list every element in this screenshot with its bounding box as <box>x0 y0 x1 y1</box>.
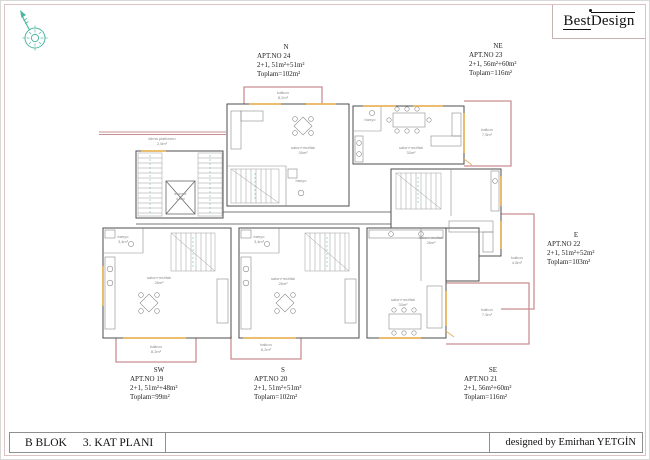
apt-no: APT.NO 19 <box>130 375 188 384</box>
direction-label: N <box>257 43 315 52</box>
apartment-label-se: SE APT.NO 21 2+1, 56m²+60m² Toplam=116m² <box>464 366 522 402</box>
room-label: 7,5m² <box>482 132 493 137</box>
apt-no: APT.NO 20 <box>254 375 312 384</box>
floor-plan-sheet: BestDesign <box>0 0 650 460</box>
room-label: 26m² <box>298 150 308 155</box>
room-label: 7,5m² <box>482 312 493 317</box>
apt-layout: 2+1, 56m²+60m² <box>469 60 527 69</box>
logo-cell: BestDesign <box>552 5 645 39</box>
room-label: 2,5m² <box>157 141 168 146</box>
room-label: 26m² <box>278 281 288 286</box>
room-label: banyo <box>365 117 377 122</box>
direction-label: SE <box>464 366 522 375</box>
apt-total: Toplam=116m² <box>464 393 522 402</box>
apt-total: Toplam=102m² <box>257 70 315 79</box>
plan-name: 3. KAT PLANI <box>83 437 153 449</box>
apt-layout: 2+1, 56m²+60m² <box>464 384 522 393</box>
title-block-left-cell: B BLOK 3. KAT PLANI <box>10 433 166 452</box>
direction-label: SW <box>130 366 188 375</box>
apartment-label-e: E APT.NO 22 2+1, 51m²+52m² Toplam=103m² <box>547 231 605 267</box>
apartment-label-sw: SW APT.NO 19 2+1, 51m²+48m² Toplam=99m² <box>130 366 188 402</box>
room-label: 26m² <box>154 280 164 285</box>
apartment-label-n: N APT.NO 24 2+1, 51m²+51m² Toplam=102m² <box>257 43 315 79</box>
logo-design-text: Design <box>591 12 635 29</box>
room-label: 33m² <box>398 302 408 307</box>
room-label: 3,4m² <box>118 239 129 244</box>
apt-layout: 2+1, 51m²+51m² <box>254 384 312 393</box>
apt-total: Toplam=102m² <box>254 393 312 402</box>
direction-label: S <box>254 366 312 375</box>
apt-total: Toplam=99m² <box>130 393 188 402</box>
apt-total: Toplam=116m² <box>469 69 527 78</box>
direction-label: NE <box>469 42 527 51</box>
room-label: 8,2m² <box>278 95 289 100</box>
room-label: 26m² <box>426 240 436 245</box>
direction-label: E <box>547 231 605 240</box>
logo-best-text: Best <box>563 13 590 30</box>
floor-plan-drawing: klima platformu 2,5m² balkon 8,2m² balko… <box>91 81 551 371</box>
apt-no: APT.NO 21 <box>464 375 522 384</box>
room-label: 4,0m² <box>176 197 186 201</box>
room-label: 3,4m² <box>254 239 265 244</box>
room-label: 33m² <box>406 150 416 155</box>
room-label: asansör <box>174 192 187 196</box>
title-block: B BLOK 3. KAT PLANI designed by Emirhan … <box>9 432 643 453</box>
room-label: 4,8m² <box>512 260 523 265</box>
apt-layout: 2+1, 51m²+51m² <box>257 61 315 70</box>
room-label: 8,2m² <box>151 349 162 354</box>
room-label: banyo <box>296 178 308 183</box>
apartment-label-ne: NE APT.NO 23 2+1, 56m²+60m² Toplam=116m² <box>469 42 527 78</box>
apt-no: APT.NO 23 <box>469 51 527 60</box>
apt-layout: 2+1, 51m²+52m² <box>547 249 605 258</box>
block-name: B BLOK <box>25 437 67 449</box>
bestdesign-logo: BestDesign <box>563 13 634 30</box>
room-label: 8,2m² <box>261 347 272 352</box>
apt-layout: 2+1, 51m²+48m² <box>130 384 188 393</box>
designer-credit: designed by Emirhan YETGİN <box>490 433 642 452</box>
title-block-middle-cell <box>166 433 490 452</box>
apt-total: Toplam=103m² <box>547 258 605 267</box>
apartment-label-s: S APT.NO 20 2+1, 51m²+51m² Toplam=102m² <box>254 366 312 402</box>
apt-no: APT.NO 24 <box>257 52 315 61</box>
apt-no: APT.NO 22 <box>547 240 605 249</box>
north-compass-icon <box>9 6 57 56</box>
